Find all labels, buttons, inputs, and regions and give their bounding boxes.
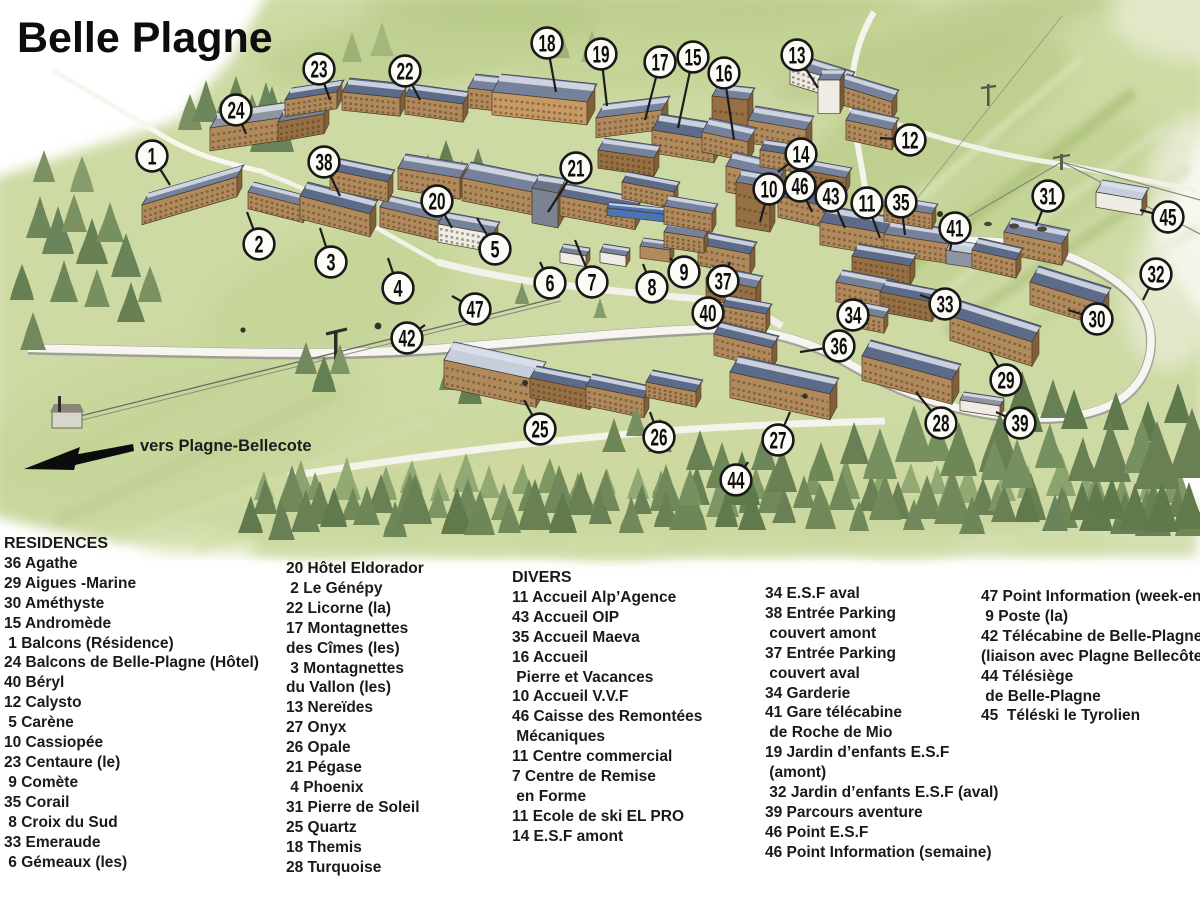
svg-text:12: 12: [902, 128, 919, 155]
svg-text:11: 11: [859, 191, 876, 218]
svg-text:9: 9: [680, 260, 689, 287]
svg-text:15: 15: [685, 45, 702, 72]
svg-text:5: 5: [491, 237, 500, 264]
svg-text:2: 2: [255, 232, 264, 259]
svg-text:44: 44: [728, 468, 745, 495]
svg-text:19: 19: [593, 42, 610, 69]
svg-text:23: 23: [311, 57, 328, 84]
svg-text:28: 28: [933, 411, 950, 438]
svg-text:33: 33: [937, 292, 954, 319]
svg-text:20: 20: [429, 189, 446, 216]
svg-text:vers Plagne-Bellecote: vers Plagne-Bellecote: [140, 437, 312, 455]
svg-text:18: 18: [539, 31, 556, 58]
svg-text:37: 37: [715, 269, 732, 296]
svg-text:43: 43: [823, 184, 840, 211]
svg-text:24: 24: [228, 98, 245, 125]
svg-text:47: 47: [467, 297, 484, 324]
svg-text:25: 25: [532, 417, 549, 444]
svg-text:21: 21: [568, 156, 585, 183]
svg-text:7: 7: [588, 270, 597, 297]
svg-text:27: 27: [770, 428, 787, 455]
svg-text:30: 30: [1089, 307, 1106, 334]
svg-text:10: 10: [761, 177, 778, 204]
svg-text:31: 31: [1040, 184, 1057, 211]
svg-text:35: 35: [893, 190, 910, 217]
svg-text:6: 6: [546, 271, 555, 298]
svg-text:46: 46: [792, 174, 809, 201]
svg-text:4: 4: [394, 276, 403, 303]
svg-text:8: 8: [648, 275, 657, 302]
svg-text:45: 45: [1160, 205, 1177, 232]
svg-text:3: 3: [327, 250, 336, 277]
svg-text:34: 34: [845, 303, 862, 330]
svg-text:41: 41: [947, 216, 964, 243]
svg-text:16: 16: [716, 61, 733, 88]
svg-text:22: 22: [397, 59, 414, 86]
svg-text:14: 14: [793, 142, 810, 169]
svg-text:40: 40: [700, 301, 717, 328]
svg-text:1: 1: [148, 144, 157, 171]
svg-text:17: 17: [652, 50, 669, 77]
svg-text:13: 13: [789, 43, 806, 70]
svg-text:39: 39: [1012, 411, 1029, 438]
svg-text:29: 29: [998, 368, 1015, 395]
svg-text:36: 36: [831, 334, 848, 361]
svg-text:32: 32: [1148, 262, 1165, 289]
svg-text:42: 42: [399, 326, 416, 353]
svg-text:26: 26: [651, 425, 668, 452]
svg-text:38: 38: [316, 150, 333, 177]
